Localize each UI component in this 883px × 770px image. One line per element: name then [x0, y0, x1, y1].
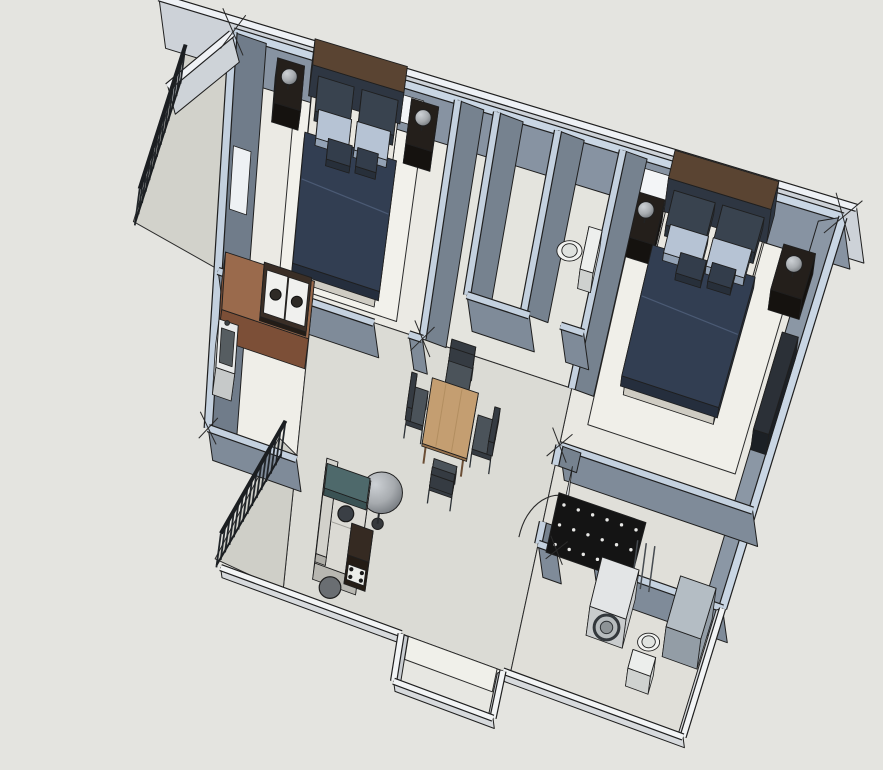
speaker-dot-3 [349, 567, 353, 571]
stove-burner-right [291, 296, 302, 307]
sofa-tray [338, 506, 354, 522]
speaker-dot-4 [360, 571, 364, 575]
speaker-dot-2 [359, 579, 363, 583]
sink-basin [219, 328, 234, 367]
wc-toilet-seat [562, 244, 577, 258]
washer-door-glass [600, 621, 612, 633]
floor-plan-3d-render [0, 0, 883, 770]
speaker-dot-1 [348, 575, 352, 579]
bath-toilet-seat [642, 636, 655, 648]
sketchup-viewport[interactable] [0, 0, 883, 770]
stove-burner-left [270, 289, 281, 300]
sofa-ottoman [319, 577, 341, 599]
sink-faucet [225, 321, 230, 326]
